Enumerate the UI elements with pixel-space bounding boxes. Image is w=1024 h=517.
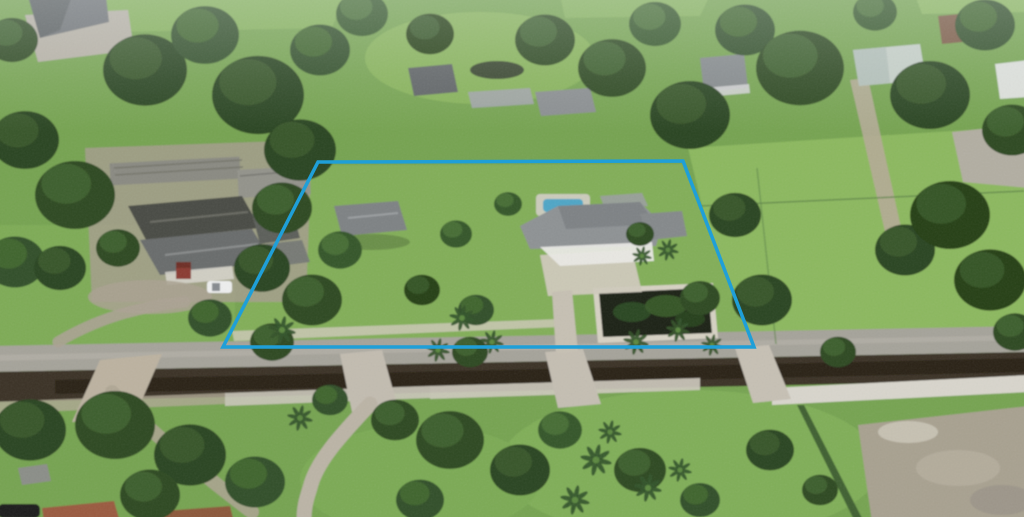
- photo-grain-overlay: [0, 0, 1024, 517]
- aerial-photo: [0, 0, 1024, 517]
- aerial-scene: [0, 0, 1024, 517]
